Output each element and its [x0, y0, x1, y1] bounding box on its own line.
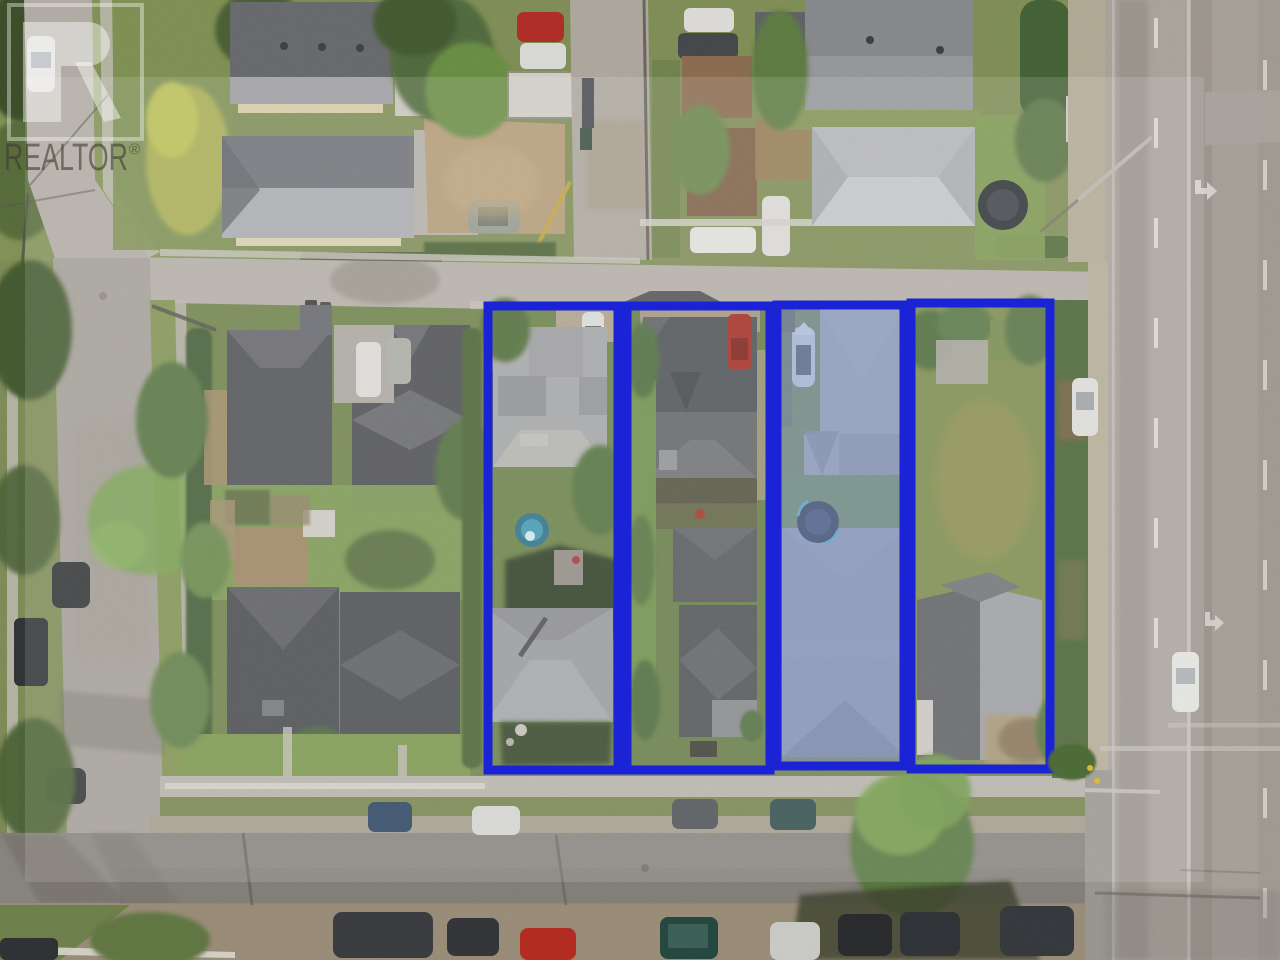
svg-text:®: ®: [129, 141, 140, 158]
svg-text:REALTOR: REALTOR: [4, 137, 128, 179]
